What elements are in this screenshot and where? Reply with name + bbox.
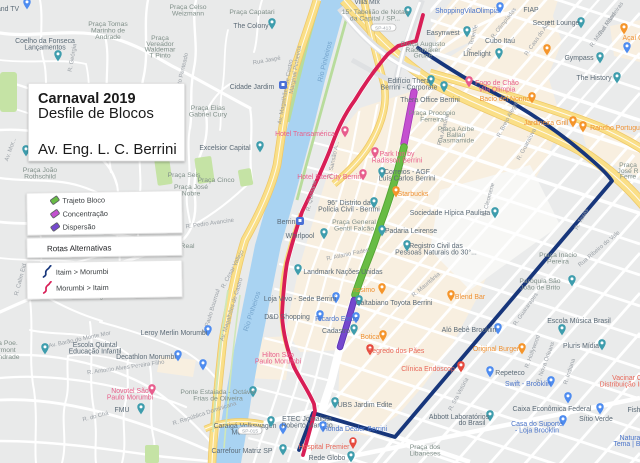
svg-text:The History: The History [576, 75, 612, 82]
svg-text:UBS Jardim Edite: UBS Jardim Edite [338, 402, 393, 409]
svg-text:Swift - Brooklin: Swift - Brooklin [505, 381, 551, 388]
svg-text:Berrini - Corporate: Berrini - Corporate [381, 85, 438, 92]
svg-text:Av. Eng. L. C. Berrini: Av. Eng. L. C. Berrini [38, 141, 177, 158]
svg-text:Ferre: Ferre [620, 174, 636, 181]
svg-text:Radisson Berrini: Radisson Berrini [372, 158, 423, 165]
svg-text:Concentração: Concentração [62, 209, 108, 219]
svg-text:Excelsior Capital: Excelsior Capital [199, 145, 251, 152]
svg-text:a Poe.: a Poe. [0, 340, 18, 347]
svg-text:Sociedade Hípica Paulista: Sociedade Hípica Paulista [410, 210, 491, 217]
svg-text:ShoppingVilaOlimpia: ShoppingVilaOlimpia [435, 8, 499, 15]
svg-text:Cadastro: Cadastro [322, 328, 350, 335]
svg-text:ndrade: ndrade [0, 354, 20, 361]
svg-text:Segredo dos Pães: Segredo dos Pães [368, 348, 425, 355]
svg-text:Weizmann: Weizmann [172, 11, 204, 18]
svg-text:Berrini: Berrini [277, 219, 297, 226]
svg-text:Grune: Grune [414, 53, 433, 60]
svg-text:Caltabiano Toyota Berrini: Caltabiano Toyota Berrini [356, 300, 433, 307]
svg-text:Educação Infantil: Educação Infantil [69, 349, 122, 356]
svg-text:and TV: and TV [0, 6, 19, 13]
svg-text:Distribuição Imuni: Distribuição Imuni [600, 382, 640, 389]
svg-text:Botica: Botica [360, 334, 379, 341]
svg-text:Loja Vivo - Sede Berrini: Loja Vivo - Sede Berrini [264, 296, 337, 303]
svg-text:Dispersão: Dispersão [63, 222, 96, 232]
svg-text:Repeteco: Repeteco [495, 370, 525, 377]
svg-text:Whirlpool: Whirlpool [286, 233, 315, 240]
svg-text:Nobre: Nobre [182, 191, 201, 198]
svg-text:rmont: rmont [0, 347, 16, 354]
svg-text:Tema | Bro: Tema | Bro [613, 441, 640, 448]
svg-text:Villa Mix: Villa Mix [354, 0, 380, 6]
svg-text:Escola Música Brasil: Escola Música Brasil [547, 318, 611, 325]
svg-text:Rede Globo: Rede Globo [309, 455, 346, 462]
svg-text:Praça Capatari: Praça Capatari [229, 9, 275, 16]
svg-text:Açaí G: Açaí G [622, 35, 640, 42]
svg-text:Landmark Nações Unidas: Landmark Nações Unidas [303, 269, 383, 276]
svg-text:Honda Dealer Berrini: Honda Dealer Berrini [323, 426, 388, 433]
svg-text:Vila Olimpia: Vila Olimpia [479, 87, 516, 94]
svg-text:Morumbi > Itaim: Morumbi > Itaim [56, 283, 109, 293]
svg-text:Blend Bar: Blend Bar [455, 294, 486, 301]
svg-text:do Brasil: do Brasil [459, 420, 486, 427]
svg-text:Casmamide: Casmamide [438, 138, 474, 145]
svg-text:Pluris Mídia: Pluris Mídia [563, 343, 599, 350]
svg-text:João de Brito: João de Brito [520, 285, 560, 292]
svg-text:Pereira: Pereira [547, 259, 569, 266]
svg-text:Gympass: Gympass [564, 55, 594, 62]
svg-text:Cidade Jardim: Cidade Jardim [230, 84, 275, 91]
svg-text:Limelight: Limelight [463, 51, 491, 58]
svg-text:Carrefour Matriz SP: Carrefour Matriz SP [212, 448, 273, 455]
svg-text:Cubo Itaú: Cubo Itaú [485, 38, 515, 45]
svg-text:Rotas Alternativas: Rotas Alternativas [47, 243, 112, 253]
svg-text:SP-015: SP-015 [242, 429, 258, 435]
svg-text:Ferreira: Ferreira [420, 117, 444, 124]
svg-text:Clínica Endoscop: Clínica Endoscop [401, 366, 455, 373]
svg-text:Hotel InterCity Berrini: Hotel InterCity Berrini [297, 174, 363, 181]
svg-text:The Colony: The Colony [233, 23, 269, 30]
svg-text:Aló Bebê Brooklin: Aló Bebê Brooklin [442, 327, 497, 334]
svg-text:Andrade: Andrade [95, 34, 121, 41]
svg-text:Fish: Fish [627, 407, 640, 414]
svg-text:Secrett Lounge: Secrett Lounge [533, 20, 580, 27]
svg-text:Trajeto Bloco: Trajeto Bloco [62, 195, 105, 205]
svg-text:rissimo: rissimo [353, 287, 375, 294]
svg-text:Paulo Morumbi: Paulo Morumbi [255, 359, 302, 366]
svg-text:Luís Carlos Berrini: Luís Carlos Berrini [379, 176, 436, 183]
svg-text:FIAP: FIAP [523, 7, 539, 14]
svg-text:Thera Office Berrini: Thera Office Berrini [400, 97, 460, 104]
svg-text:Hotel Transamérica: Hotel Transamérica [275, 131, 335, 138]
svg-text:D&D Shopping: D&D Shopping [264, 314, 310, 321]
svg-text:Pessoas Naturais do 30°...: Pessoas Naturais do 30°... [395, 249, 477, 257]
svg-text:Easynwest: Easynwest [426, 30, 459, 37]
svg-text:Starbucks: Starbucks [398, 191, 429, 198]
svg-text:Praça Cinco: Praça Cinco [197, 177, 234, 184]
svg-text:Hospital Premier: Hospital Premier [299, 444, 351, 451]
svg-text:Jardineira Grill: Jardineira Grill [524, 120, 569, 127]
svg-text:Sítio Verde: Sítio Verde [579, 416, 613, 423]
svg-text:Rothschild: Rothschild [24, 174, 56, 181]
svg-text:- Loja Brooklin: - Loja Brooklin [515, 428, 559, 435]
svg-text:Padaria Leirense: Padaria Leirense [385, 228, 437, 235]
svg-text:Itaim > Morumbi: Itaim > Morumbi [56, 267, 109, 277]
svg-text:FMU: FMU [115, 407, 130, 414]
svg-text:Polícia Civil - Berrini: Polícia Civil - Berrini [318, 207, 380, 214]
svg-text:Rancho Portugu: Rancho Portugu [590, 125, 640, 132]
svg-text:Original Burger: Original Burger [473, 346, 520, 353]
svg-text:Paulo Morumbi: Paulo Morumbi [107, 395, 154, 402]
svg-text:SP-413: SP-413 [375, 26, 391, 32]
svg-text:Caixa Econômica Federal: Caixa Econômica Federal [513, 406, 592, 413]
svg-text:Leroy Merlin Morumbi: Leroy Merlin Morumbi [141, 330, 208, 337]
svg-text:Desfile de Blocos: Desfile de Blocos [38, 105, 154, 122]
svg-text:Praça Seis: Praça Seis [168, 172, 201, 179]
svg-text:Frias de Oliveira: Frias de Oliveira [193, 396, 243, 403]
svg-text:da Capital / SP...: da Capital / SP... [350, 16, 400, 23]
svg-text:T Pinto: T Pinto [149, 52, 171, 59]
svg-text:Bacio del Nonno: Bacio del Nonno [480, 96, 531, 103]
svg-text:Lançamentos: Lançamentos [24, 45, 66, 52]
svg-text:Libaneses: Libaneses [410, 451, 442, 458]
svg-text:Decathlon Morumbi: Decathlon Morumbi [116, 354, 176, 361]
svg-text:Gentil Falcão: Gentil Falcão [334, 226, 374, 233]
svg-text:Gabriel Cury: Gabriel Cury [189, 112, 228, 119]
svg-text:Ricardo Eletro: Ricardo Eletro [315, 316, 359, 323]
